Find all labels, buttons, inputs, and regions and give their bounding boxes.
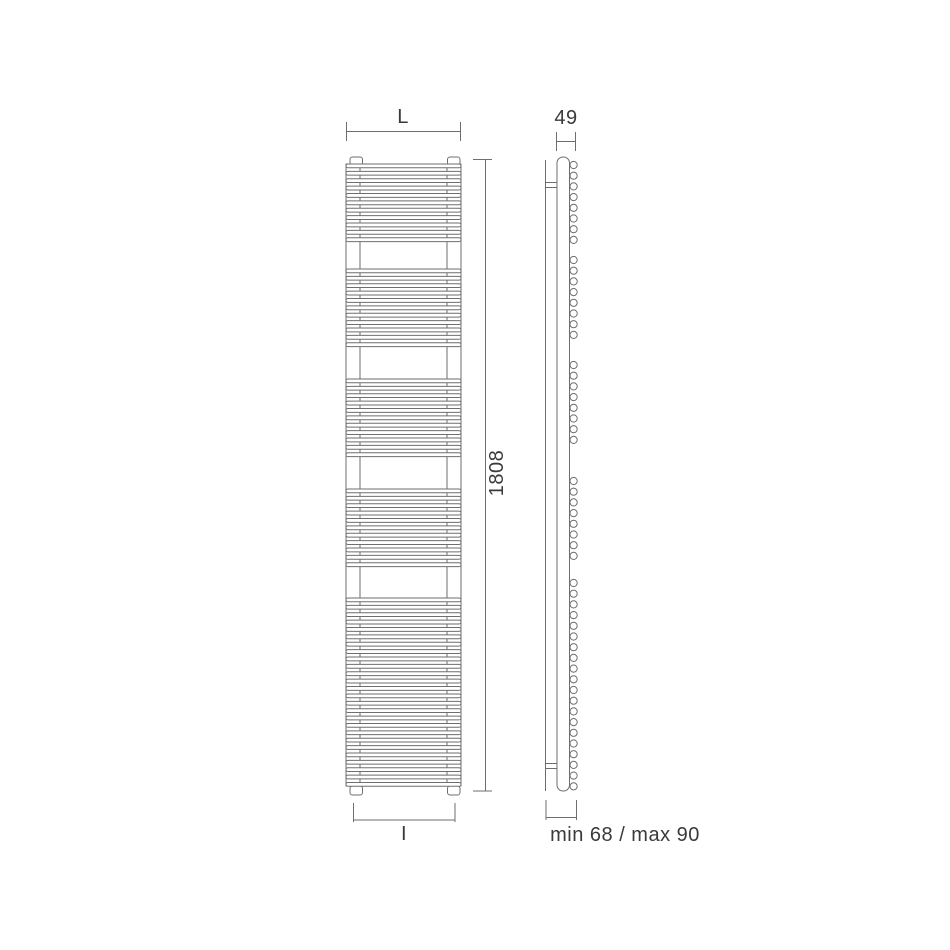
dimension-label-wall-distance: min 68 / max 90 (550, 825, 700, 845)
rung-group2 (346, 335, 461, 339)
tube-end-circle-group5 (570, 633, 577, 640)
tube-end-circle-group5 (570, 697, 577, 704)
rung-group4 (346, 519, 461, 523)
rung-group5 (346, 687, 461, 691)
rung-group4 (346, 489, 461, 493)
tube-end-circle-group5 (570, 708, 577, 715)
rung-group4 (346, 511, 461, 515)
technical-drawing-page: L 49 1808 I min 68 / max 90 (0, 0, 950, 950)
rung-group1 (346, 223, 461, 227)
tube-end-circle-group4 (570, 477, 577, 484)
rung-group1 (346, 238, 461, 242)
rung-group2 (346, 321, 461, 325)
tube-end-circle-group5 (570, 622, 577, 629)
rung-group3 (346, 401, 461, 405)
rung-group3 (346, 379, 461, 383)
rung-group1 (346, 194, 461, 198)
tube-end-circle-group4 (570, 552, 577, 559)
rung-group5 (346, 768, 461, 772)
rung-group1 (346, 230, 461, 234)
rung-group2 (346, 269, 461, 273)
rung-group5 (346, 701, 461, 705)
radiator-dimension-diagram (0, 0, 950, 950)
collector-tube-left (346, 164, 360, 786)
rung-group5 (346, 657, 461, 661)
rung-group5 (346, 783, 461, 787)
side-collector-bar (557, 157, 570, 791)
tube-end-circle-group1 (570, 204, 577, 211)
tube-end-circle-group2 (570, 289, 577, 296)
tube-end-circle-group2 (570, 299, 577, 306)
rung-group3 (346, 453, 461, 457)
tube-end-circle-group3 (570, 383, 577, 390)
rung-group3 (346, 431, 461, 435)
tube-end-circle-group4 (570, 509, 577, 516)
rung-group5 (346, 672, 461, 676)
tube-end-circle-group5 (570, 751, 577, 758)
tube-end-circle-group1 (570, 161, 577, 168)
rung-group5 (346, 723, 461, 727)
rung-group1 (346, 164, 461, 168)
rung-group3 (346, 394, 461, 398)
rung-group5 (346, 635, 461, 639)
rung-group2 (346, 328, 461, 332)
rung-group5 (346, 650, 461, 654)
rung-group2 (346, 276, 461, 280)
tube-end-circle-group5 (570, 612, 577, 619)
dimension-label-height: 1808 (487, 450, 507, 497)
rung-group3 (346, 386, 461, 390)
rung-group3 (346, 409, 461, 413)
rung-group5 (346, 620, 461, 624)
tube-end-circle-group4 (570, 499, 577, 506)
tube-end-circle-group2 (570, 278, 577, 285)
tube-end-circle-group5 (570, 654, 577, 661)
tube-end-circle-group5 (570, 644, 577, 651)
rung-group5 (346, 694, 461, 698)
rung-group5 (346, 775, 461, 779)
rung-group4 (346, 563, 461, 567)
tube-end-circle-group3 (570, 436, 577, 443)
tube-end-circle-group2 (570, 321, 577, 328)
tube-end-circle-group1 (570, 172, 577, 179)
rung-group4 (346, 533, 461, 537)
tube-end-circle-group5 (570, 676, 577, 683)
rung-group1 (346, 179, 461, 183)
tube-end-circle-group2 (570, 310, 577, 317)
rung-group1 (346, 208, 461, 212)
tube-end-circle-group4 (570, 531, 577, 538)
foot-left (350, 786, 363, 795)
dimension-label-width-top: L (397, 107, 409, 127)
tube-end-circle-group5 (570, 579, 577, 586)
tube-end-circle-group4 (570, 520, 577, 527)
tube-end-circle-group5 (570, 740, 577, 747)
foot-right (448, 786, 461, 795)
rung-group5 (346, 738, 461, 742)
tube-end-circle-group1 (570, 226, 577, 233)
rung-group2 (346, 313, 461, 317)
tube-end-circle-group1 (570, 215, 577, 222)
rung-group2 (346, 343, 461, 347)
rung-group5 (346, 679, 461, 683)
tube-end-circle-group5 (570, 772, 577, 779)
tube-end-circle-group5 (570, 783, 577, 790)
rung-group4 (346, 555, 461, 559)
rung-group4 (346, 548, 461, 552)
tube-end-circle-group1 (570, 236, 577, 243)
rung-group2 (346, 299, 461, 303)
tube-end-circle-group5 (570, 686, 577, 693)
rung-group5 (346, 605, 461, 609)
rung-group1 (346, 216, 461, 220)
tube-end-circle-group5 (570, 719, 577, 726)
tube-end-circle-group2 (570, 267, 577, 274)
rung-group5 (346, 746, 461, 750)
rung-group1 (346, 201, 461, 205)
dimension-label-depth: 49 (554, 108, 577, 128)
dimension-label-width-bottom: I (401, 824, 407, 844)
rung-group5 (346, 716, 461, 720)
tube-end-circle-group1 (570, 183, 577, 190)
rung-group3 (346, 416, 461, 420)
tube-end-circle-group3 (570, 415, 577, 422)
tube-end-circle-group1 (570, 194, 577, 201)
rung-group3 (346, 438, 461, 442)
rung-group2 (346, 284, 461, 288)
tube-end-circle-group5 (570, 729, 577, 736)
rung-group5 (346, 613, 461, 617)
rung-group5 (346, 731, 461, 735)
tube-end-circle-group3 (570, 372, 577, 379)
rung-group5 (346, 753, 461, 757)
tube-end-circle-group5 (570, 590, 577, 597)
tube-end-circle-group5 (570, 601, 577, 608)
rung-group5 (346, 642, 461, 646)
rung-group5 (346, 760, 461, 764)
rung-group4 (346, 526, 461, 530)
tube-end-circle-group3 (570, 426, 577, 433)
rung-group1 (346, 186, 461, 190)
rung-group5 (346, 709, 461, 713)
rung-group1 (346, 171, 461, 175)
rung-group3 (346, 423, 461, 427)
tube-end-circle-group4 (570, 488, 577, 495)
rung-group5 (346, 664, 461, 668)
collector-tube-right (447, 164, 461, 786)
tube-end-circle-group3 (570, 394, 577, 401)
rung-group5 (346, 598, 461, 602)
tube-end-circle-group2 (570, 331, 577, 338)
tube-end-circle-group3 (570, 361, 577, 368)
rung-group4 (346, 541, 461, 545)
tube-end-circle-group3 (570, 404, 577, 411)
tube-end-circle-group4 (570, 542, 577, 549)
rung-group3 (346, 445, 461, 449)
rung-group4 (346, 496, 461, 500)
rung-group5 (346, 628, 461, 632)
rung-group4 (346, 504, 461, 508)
rung-group2 (346, 306, 461, 310)
tube-end-circle-group5 (570, 761, 577, 768)
tube-end-circle-group5 (570, 665, 577, 672)
tube-end-circle-group2 (570, 256, 577, 263)
rung-group2 (346, 291, 461, 295)
